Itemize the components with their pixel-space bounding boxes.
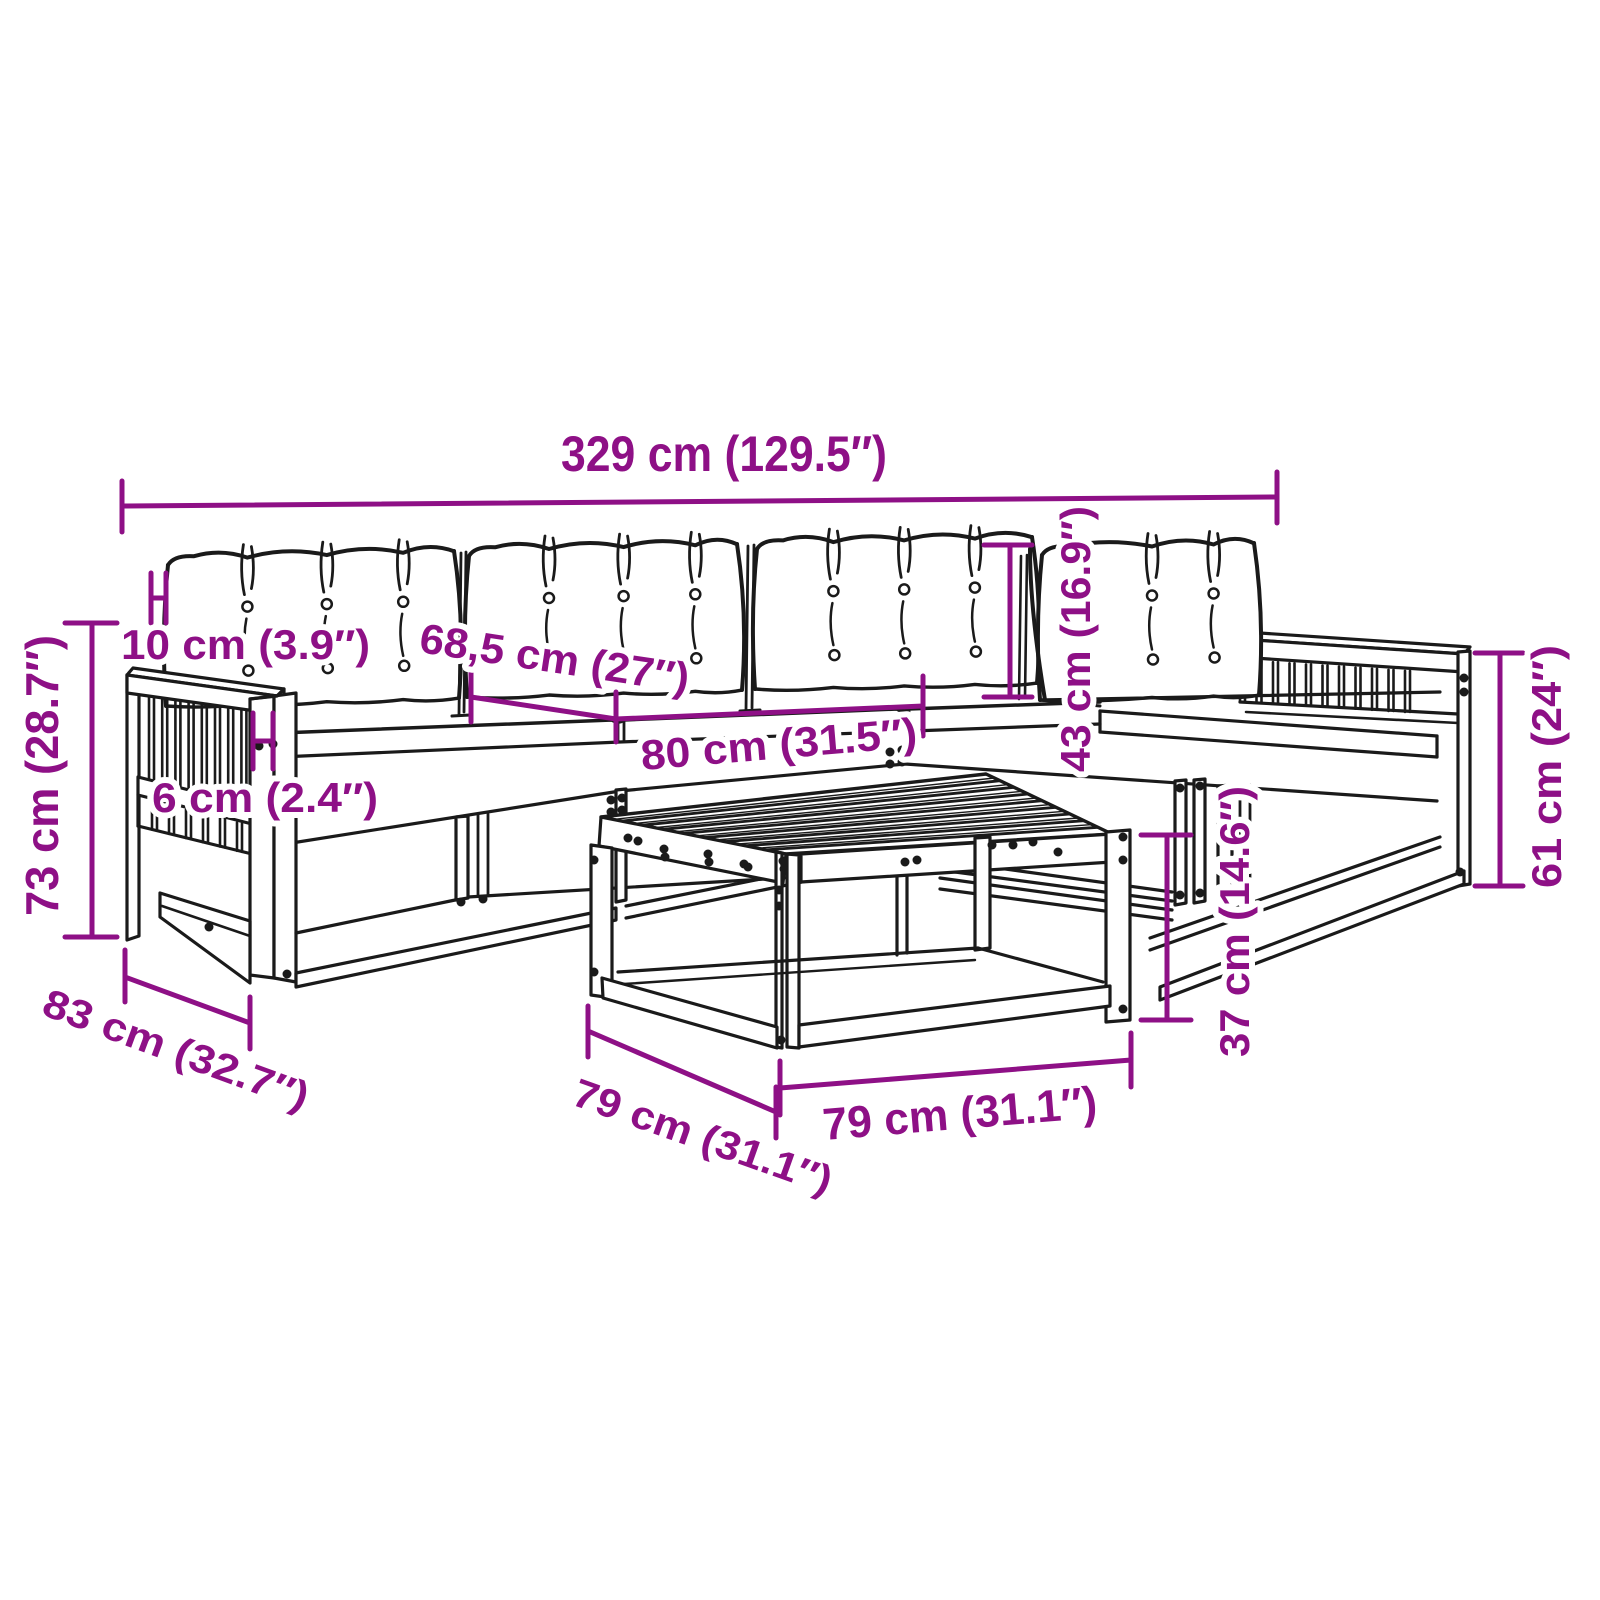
svg-text:37 cm (14.6″): 37 cm (14.6″)	[1211, 786, 1258, 1057]
svg-text:73 cm (28.7″): 73 cm (28.7″)	[16, 635, 68, 916]
svg-text:329 cm (129.5″): 329 cm (129.5″)	[561, 426, 887, 482]
svg-text:61 cm (24″): 61 cm (24″)	[1523, 645, 1570, 888]
svg-text:43 cm (16.9″): 43 cm (16.9″)	[1052, 506, 1099, 772]
svg-text:6 cm (2.4″): 6 cm (2.4″)	[152, 774, 378, 821]
svg-text:10 cm (3.9″): 10 cm (3.9″)	[121, 621, 370, 668]
